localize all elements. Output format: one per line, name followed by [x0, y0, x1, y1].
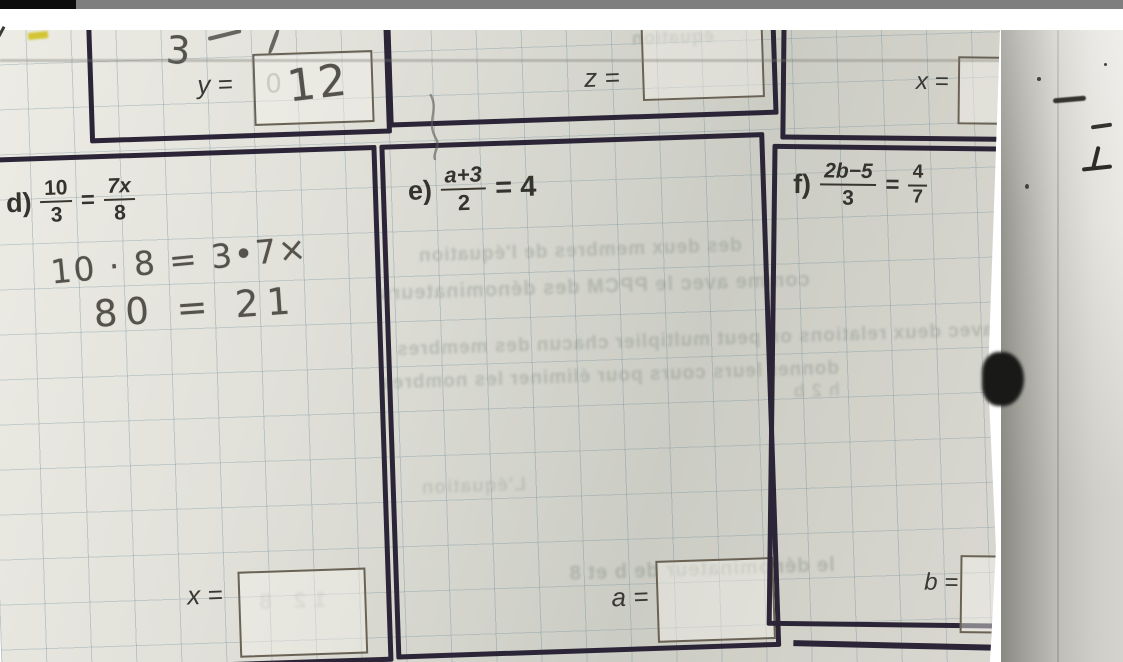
page-content: des deux membres de l'équation comme ave… [0, 30, 1002, 662]
equals-sign: = [885, 171, 899, 199]
equation-d: d) 103 = 7x8 [5, 174, 136, 228]
panel-top-y: 3 y = 0 12 [85, 30, 392, 143]
fraction: 47 [908, 163, 927, 209]
answer-label-y: y = [197, 69, 233, 101]
pencil-stroke [208, 30, 242, 41]
panel-top-x: x = [780, 30, 1002, 142]
equals-sign: = [80, 186, 95, 214]
answer-box-z [639, 30, 765, 101]
top-gray-bar [76, 0, 1123, 9]
pencil-squiggle [423, 93, 449, 164]
equation-rhs: = 4 [495, 170, 537, 204]
fraction: 2b−53 [820, 159, 877, 210]
answer-box-x-top [958, 56, 1002, 125]
panel-problem-d: d) 103 = 7x8 10 · 8 = 3•7× 80 = 21 x = [0, 145, 394, 662]
problem-label-e: e) [407, 175, 432, 207]
equation-e: e) a+32 = 4 [407, 161, 537, 218]
pencil-stroke [267, 30, 280, 55]
ink-speck [1037, 77, 1041, 81]
handwritten-answer-y: 12 [284, 54, 352, 112]
answer-label-x-top: x = [916, 68, 949, 96]
handwritten-scratch-3: 3 [165, 30, 192, 73]
underlying-page-edge [1057, 30, 1059, 662]
next-panel-border [793, 640, 1002, 653]
panel-problem-e: e) a+32 = 4 a = [379, 132, 781, 659]
fraction: a+32 [440, 162, 487, 216]
faint-pencil-mark: 0 [265, 69, 283, 100]
workbook-page: des deux membres de l'équation comme ave… [0, 30, 1002, 662]
answer-box-a [655, 557, 776, 643]
equation-f: f) 2b−53 = 47 [793, 159, 928, 211]
answer-label-z: z = [584, 62, 620, 94]
answer-box-b [960, 555, 1002, 634]
ink-speck [1025, 184, 1029, 189]
fraction: 103 [40, 176, 73, 227]
answer-box-x [237, 568, 368, 658]
dark-blob [982, 352, 1024, 406]
problem-label-d: d) [6, 187, 32, 219]
fraction: 7x8 [103, 174, 136, 225]
problem-label-f: f) [793, 169, 811, 200]
handwritten-work-line-2: 80 = 21 [92, 279, 299, 336]
answer-label-b: b = [924, 569, 958, 597]
top-black-bar [0, 0, 76, 9]
page-top-edge-shadow [0, 59, 1002, 62]
panel-problem-f: f) 2b−53 = 47 b = [767, 144, 1002, 630]
workbook-photo: des deux membres de l'équation comme ave… [0, 0, 1123, 662]
ink-speck [1104, 63, 1107, 66]
answer-label-x: x = [187, 579, 223, 611]
answer-label-a: a = [611, 581, 649, 613]
